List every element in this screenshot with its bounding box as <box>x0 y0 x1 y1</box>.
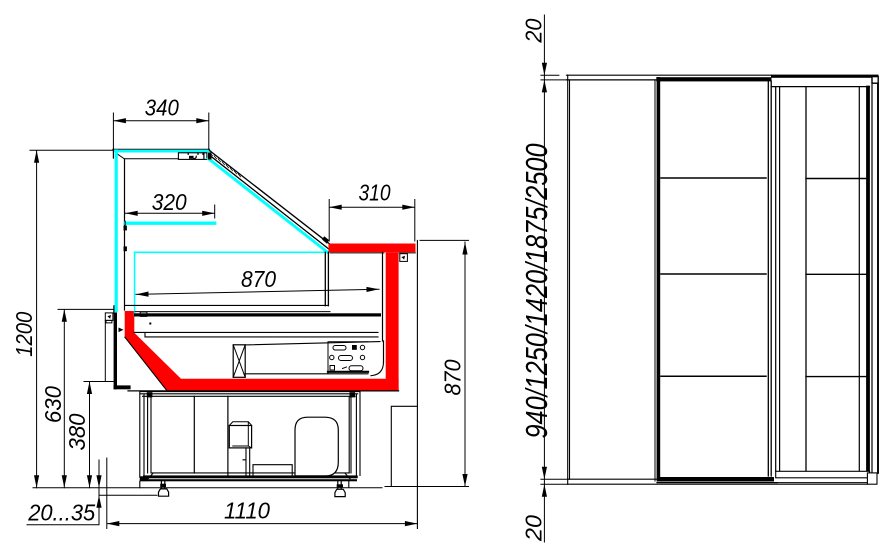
svg-text:1200: 1200 <box>11 312 37 357</box>
svg-text:20...35: 20...35 <box>27 500 95 526</box>
svg-text:380: 380 <box>64 413 90 450</box>
svg-text:340: 340 <box>145 95 179 121</box>
svg-text:20: 20 <box>521 515 547 542</box>
svg-text:1110: 1110 <box>224 498 270 524</box>
svg-text:320: 320 <box>152 189 187 215</box>
svg-text:870: 870 <box>440 359 466 395</box>
svg-text:310: 310 <box>359 180 391 206</box>
svg-text:870: 870 <box>241 266 276 292</box>
svg-text:940/1250/1420/1875/2500: 940/1250/1420/1875/2500 <box>519 144 554 439</box>
svg-text:20: 20 <box>521 18 547 43</box>
svg-text:630: 630 <box>40 386 66 423</box>
